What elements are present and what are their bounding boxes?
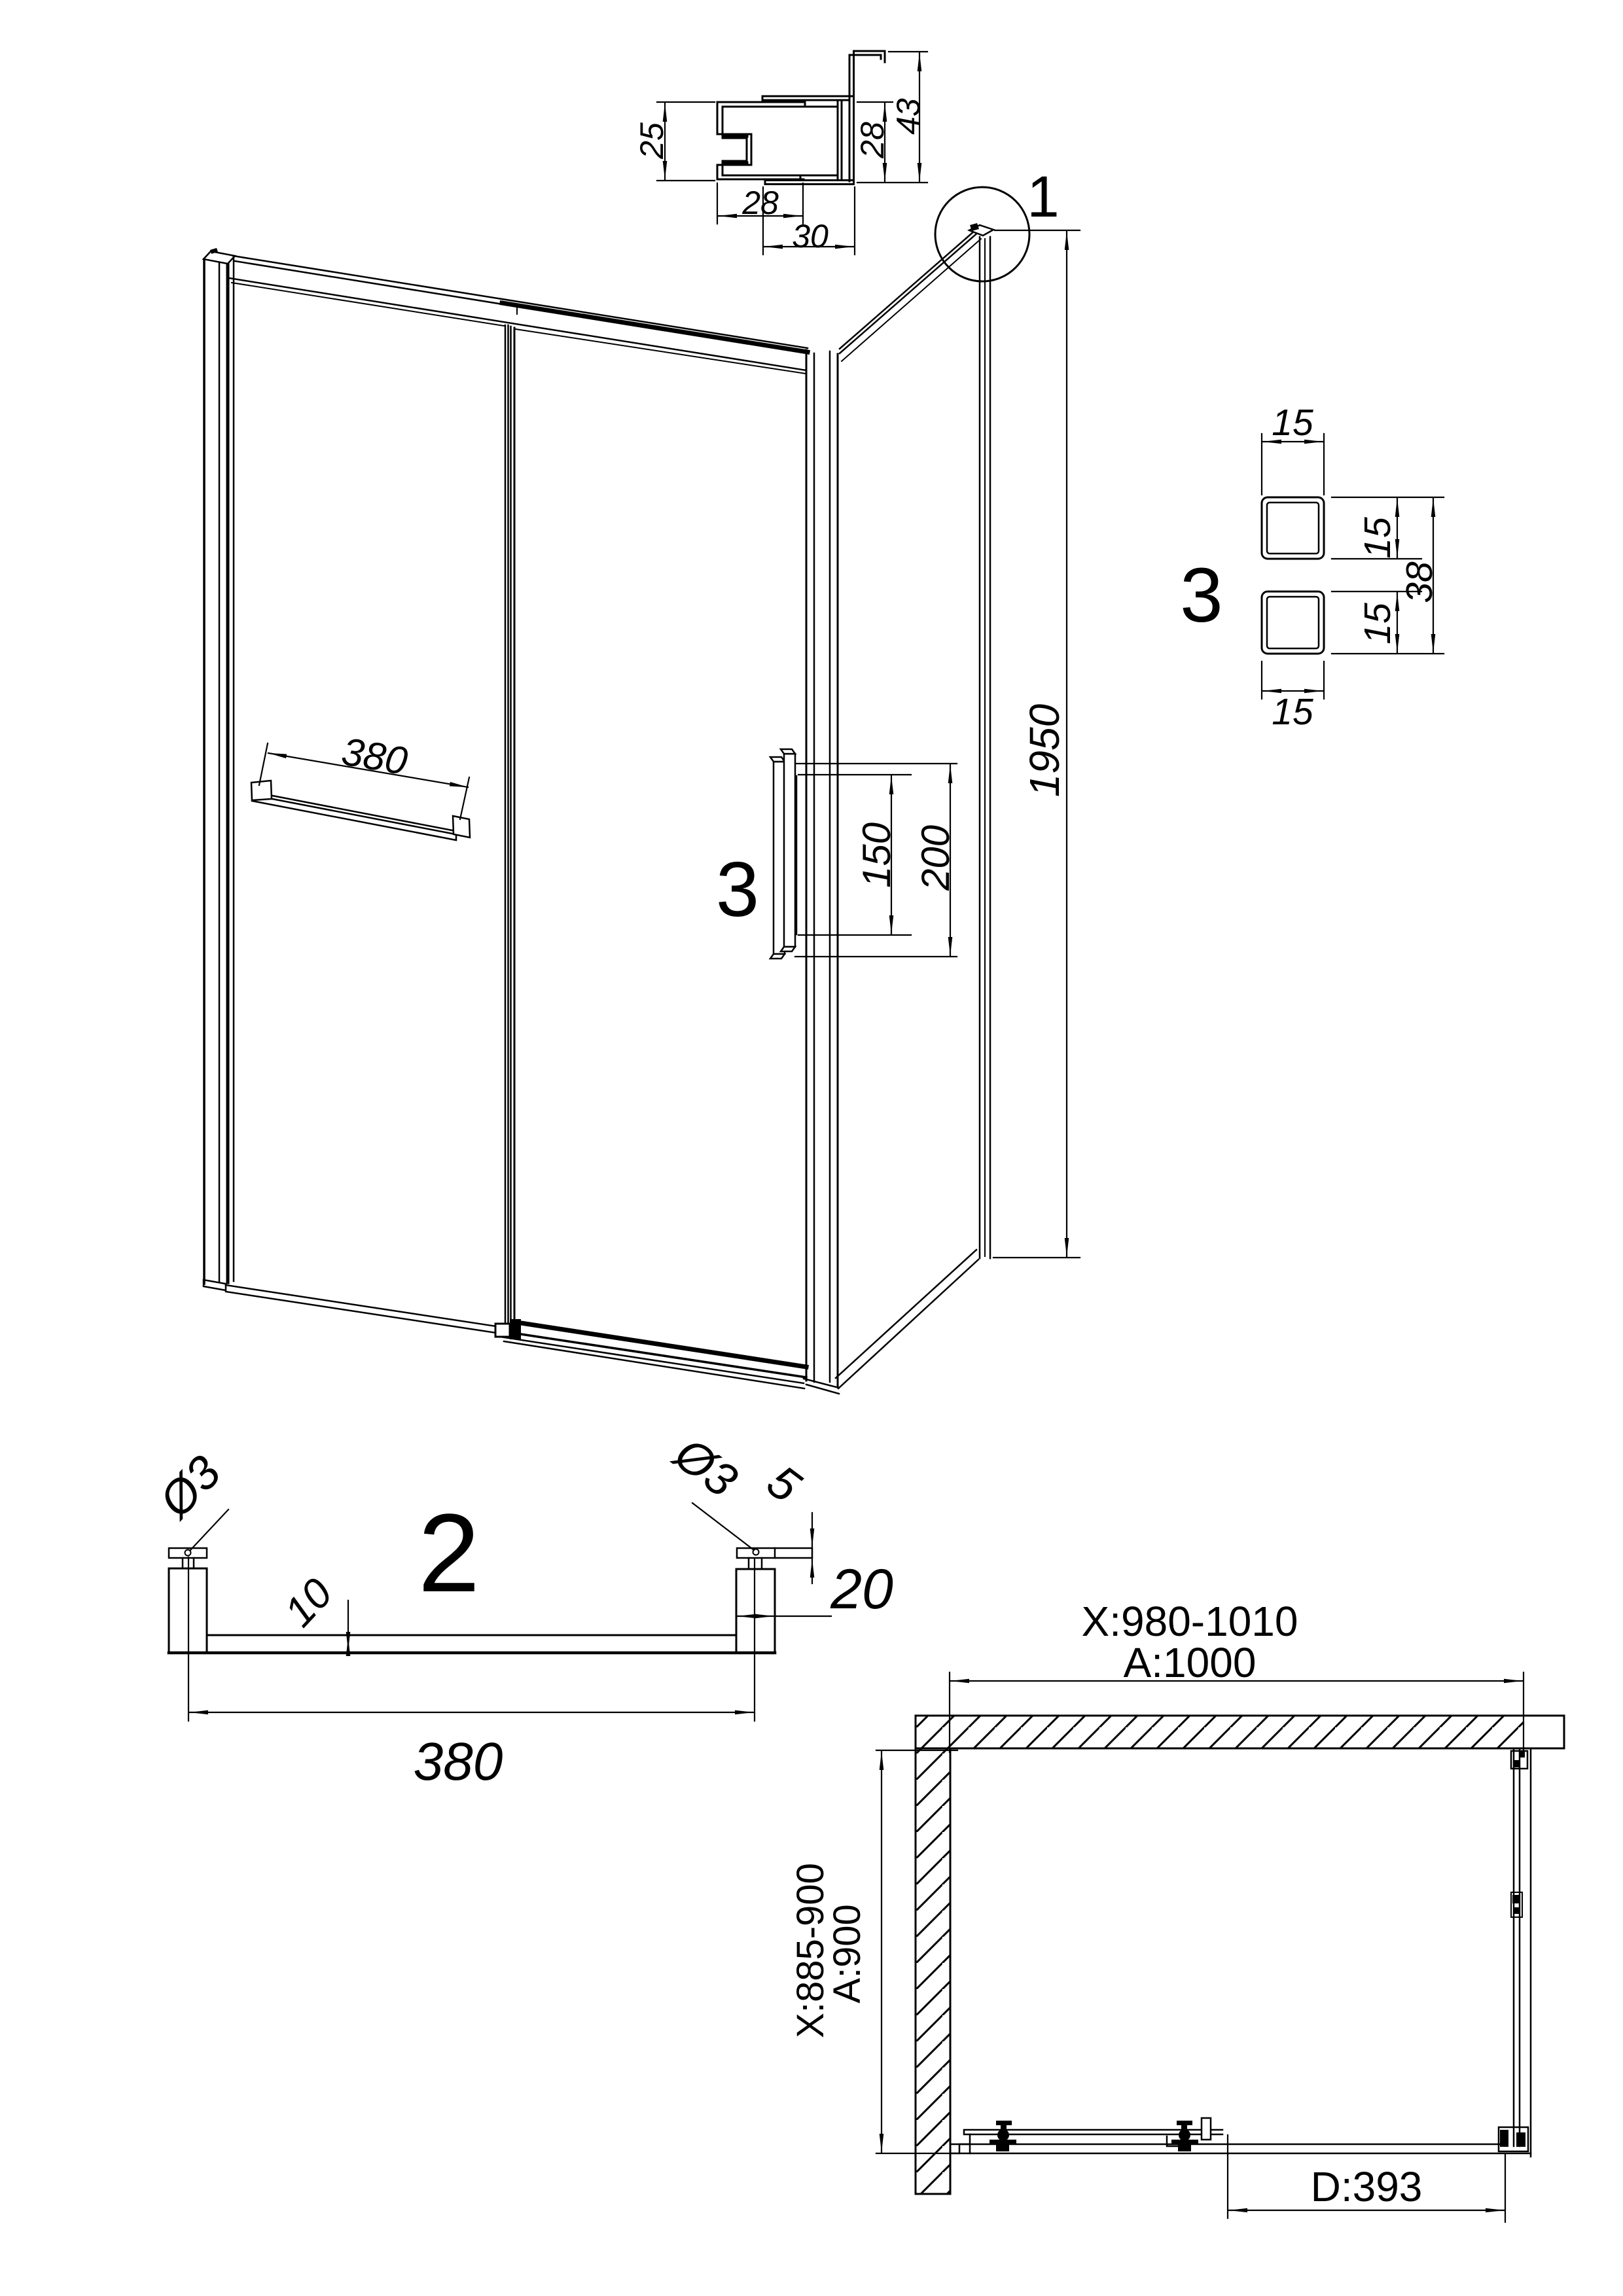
svg-text:10: 10 bbox=[275, 1569, 341, 1635]
svg-text:25: 25 bbox=[633, 122, 670, 160]
svg-text:3: 3 bbox=[716, 846, 759, 933]
svg-text:15: 15 bbox=[1272, 691, 1313, 733]
svg-text:28: 28 bbox=[854, 122, 891, 159]
svg-text:15: 15 bbox=[1357, 517, 1399, 559]
svg-text:Ø3: Ø3 bbox=[149, 1446, 231, 1528]
svg-text:30: 30 bbox=[792, 218, 829, 255]
svg-text:28: 28 bbox=[741, 185, 779, 221]
svg-text:1: 1 bbox=[1027, 164, 1060, 229]
svg-text:20: 20 bbox=[830, 1558, 893, 1621]
svg-text:5: 5 bbox=[757, 1455, 810, 1513]
svg-text:150: 150 bbox=[855, 822, 899, 888]
svg-text:A:900: A:900 bbox=[826, 1904, 868, 2004]
svg-text:1950: 1950 bbox=[1021, 703, 1068, 797]
svg-text:X:980-1010: X:980-1010 bbox=[1082, 1598, 1298, 1645]
svg-text:Ø3: Ø3 bbox=[664, 1427, 746, 1508]
svg-text:200: 200 bbox=[914, 825, 957, 891]
svg-text:D:393: D:393 bbox=[1311, 2163, 1423, 2210]
svg-text:A:1000: A:1000 bbox=[1124, 1639, 1257, 1686]
svg-text:380: 380 bbox=[338, 729, 410, 783]
svg-text:3: 3 bbox=[1180, 552, 1223, 639]
svg-text:38: 38 bbox=[1399, 561, 1440, 603]
svg-text:2: 2 bbox=[418, 1491, 480, 1616]
svg-text:15: 15 bbox=[1357, 603, 1399, 645]
svg-text:43: 43 bbox=[890, 98, 927, 135]
svg-text:380: 380 bbox=[414, 1732, 503, 1792]
svg-text:15: 15 bbox=[1272, 402, 1313, 444]
